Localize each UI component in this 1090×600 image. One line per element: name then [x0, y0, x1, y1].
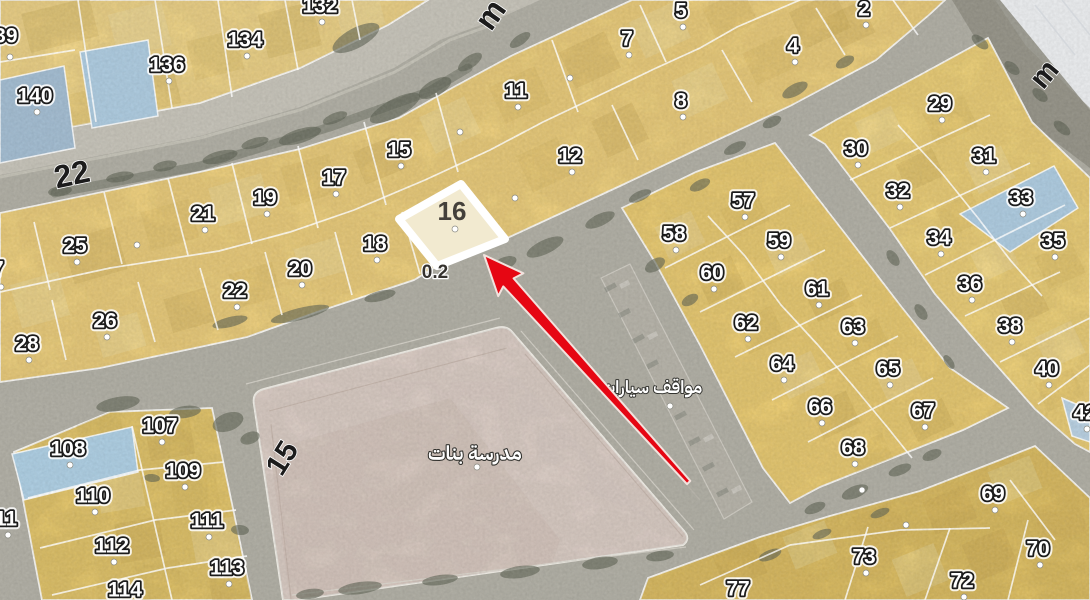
- svg-text:17: 17: [322, 167, 345, 190]
- svg-text:69: 69: [981, 483, 1004, 506]
- svg-text:134: 134: [227, 29, 262, 52]
- svg-text:16: 16: [438, 196, 467, 226]
- svg-text:63: 63: [841, 316, 864, 339]
- svg-text:11: 11: [505, 80, 528, 103]
- svg-text:70: 70: [1026, 538, 1049, 561]
- svg-text:19: 19: [253, 187, 276, 210]
- svg-text:12: 12: [558, 145, 581, 168]
- svg-text:25: 25: [63, 235, 87, 258]
- svg-text:21: 21: [191, 203, 215, 226]
- svg-text:107: 107: [142, 415, 177, 438]
- svg-text:139: 139: [0, 25, 18, 48]
- svg-text:33: 33: [1009, 187, 1032, 210]
- svg-text:57: 57: [731, 190, 754, 213]
- svg-text:35: 35: [1041, 230, 1065, 253]
- svg-text:18: 18: [363, 233, 387, 256]
- svg-text:22: 22: [223, 280, 246, 303]
- svg-text:73: 73: [852, 546, 875, 569]
- svg-text:62: 62: [734, 312, 757, 335]
- svg-text:0.2: 0.2: [422, 262, 448, 283]
- svg-text:108: 108: [50, 438, 85, 461]
- svg-text:15: 15: [387, 139, 411, 162]
- svg-text:20: 20: [288, 258, 311, 281]
- svg-text:72: 72: [950, 570, 973, 593]
- svg-text:59: 59: [767, 230, 790, 253]
- svg-text:4: 4: [787, 35, 799, 58]
- svg-text:111: 111: [191, 510, 224, 533]
- svg-text:11: 11: [0, 508, 17, 531]
- svg-text:36: 36: [958, 273, 981, 296]
- svg-text:112: 112: [95, 535, 129, 558]
- svg-text:31: 31: [972, 145, 996, 168]
- svg-text:66: 66: [808, 396, 831, 419]
- svg-text:29: 29: [928, 93, 951, 116]
- svg-text:60: 60: [700, 262, 723, 285]
- svg-text:68: 68: [841, 437, 865, 460]
- svg-text:8: 8: [675, 90, 687, 113]
- svg-text:67: 67: [911, 400, 934, 423]
- svg-text:27: 27: [0, 258, 4, 281]
- svg-text:132: 132: [302, 0, 337, 18]
- svg-text:65: 65: [876, 358, 900, 381]
- svg-text:114: 114: [108, 579, 142, 600]
- svg-text:109: 109: [165, 460, 200, 483]
- svg-text:28: 28: [15, 333, 39, 356]
- svg-text:110: 110: [76, 485, 110, 508]
- svg-text:77: 77: [726, 578, 749, 600]
- svg-text:40: 40: [1035, 358, 1058, 381]
- svg-text:113: 113: [210, 557, 244, 580]
- svg-text:22: 22: [51, 153, 93, 196]
- svg-text:2: 2: [858, 0, 870, 21]
- svg-text:61: 61: [805, 278, 829, 301]
- svg-text:34: 34: [927, 227, 951, 250]
- svg-text:26: 26: [93, 310, 116, 333]
- svg-text:64: 64: [770, 353, 794, 376]
- svg-text:30: 30: [844, 138, 867, 161]
- svg-text:140: 140: [17, 85, 52, 108]
- svg-text:5: 5: [675, 0, 687, 23]
- svg-text:58: 58: [662, 223, 686, 246]
- svg-text:136: 136: [149, 54, 184, 77]
- svg-text:32: 32: [886, 180, 909, 203]
- svg-text:42: 42: [1073, 402, 1090, 425]
- svg-text:38: 38: [998, 315, 1022, 338]
- svg-text:7: 7: [621, 28, 633, 51]
